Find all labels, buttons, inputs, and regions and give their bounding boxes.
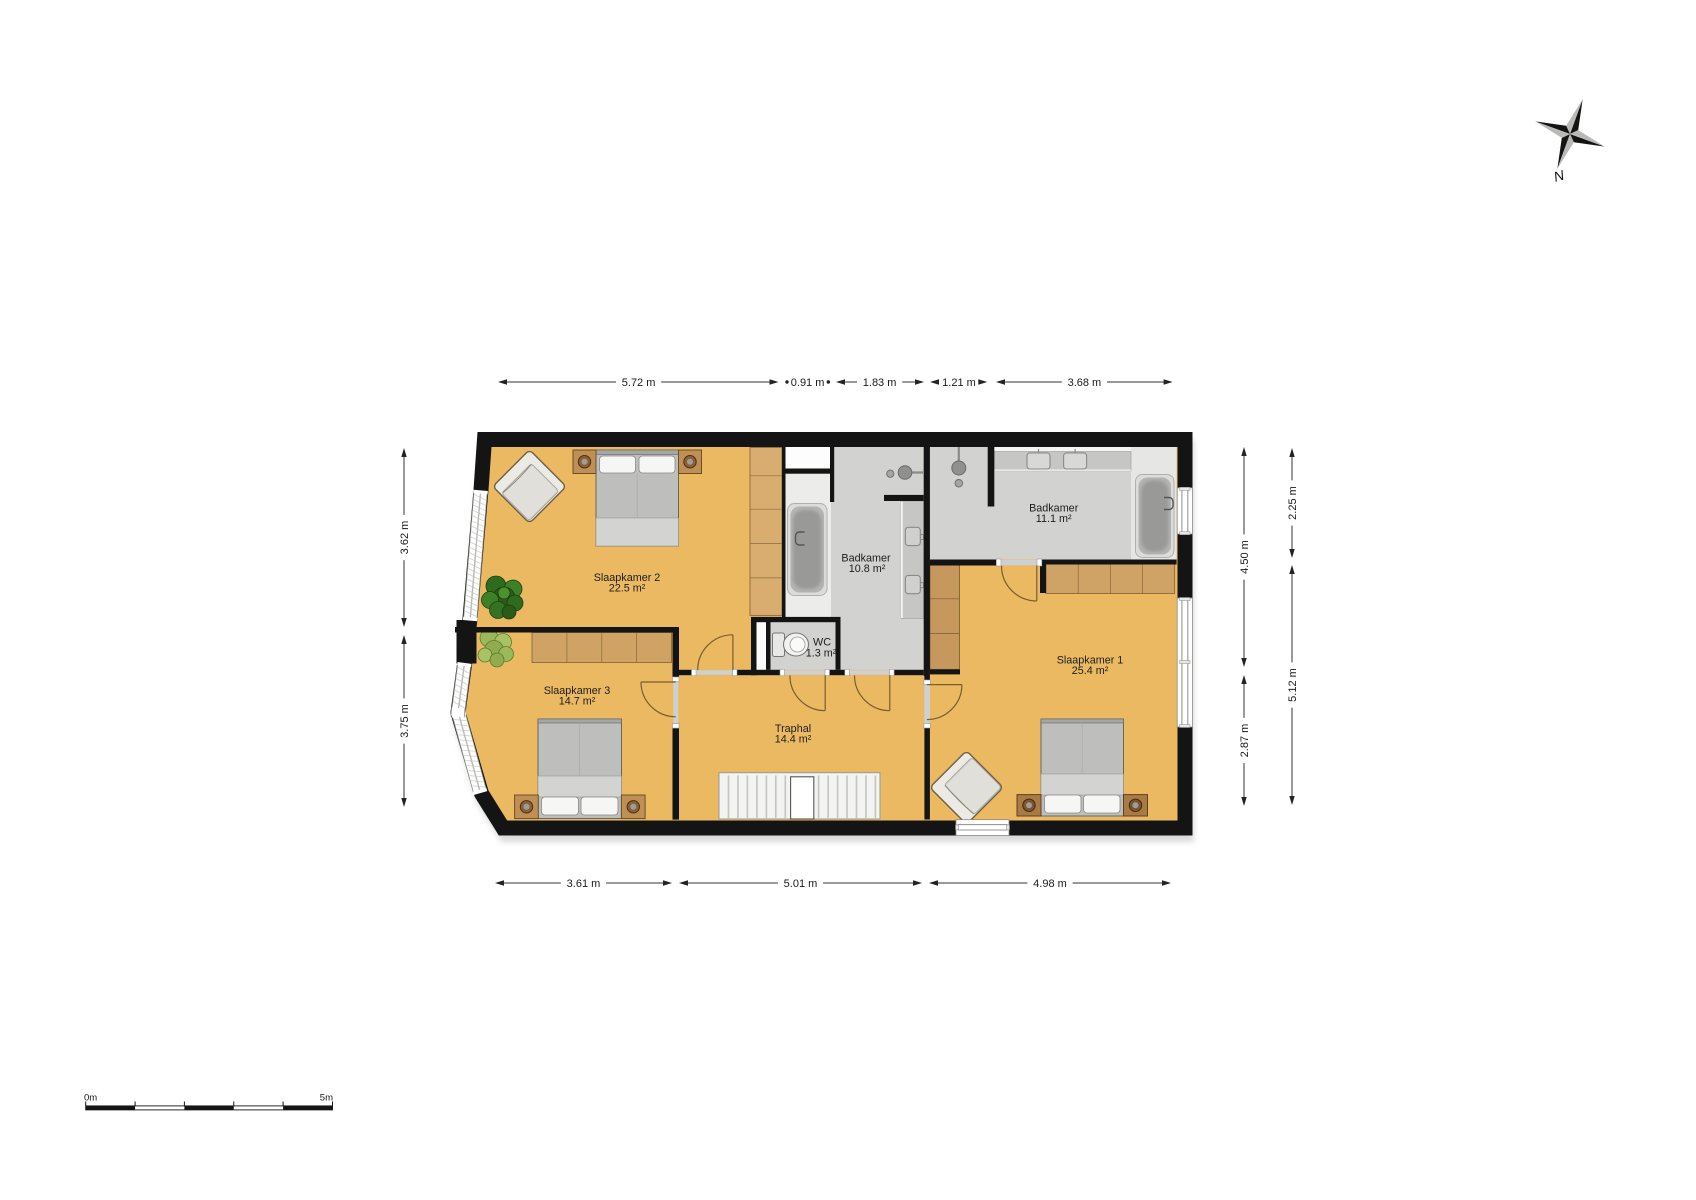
svg-text:1.83 m: 1.83 m <box>863 377 897 389</box>
svg-text:5.01 m: 5.01 m <box>784 878 818 890</box>
svg-text:14.7 m²: 14.7 m² <box>559 696 596 708</box>
svg-text:3.62 m: 3.62 m <box>399 521 411 555</box>
svg-text:5.12 m: 5.12 m <box>1287 668 1299 702</box>
svg-text:2.87 m: 2.87 m <box>1239 724 1251 758</box>
svg-text:1.21 m: 1.21 m <box>942 377 976 389</box>
svg-text:0m: 0m <box>84 1093 97 1104</box>
svg-text:3.61 m: 3.61 m <box>567 878 601 890</box>
svg-text:22.5 m²: 22.5 m² <box>609 583 646 595</box>
svg-text:4.50 m: 4.50 m <box>1239 540 1251 574</box>
svg-text:4.98 m: 4.98 m <box>1033 878 1067 890</box>
svg-text:1.3 m²: 1.3 m² <box>806 647 837 659</box>
svg-text:10.8 m²: 10.8 m² <box>849 563 886 575</box>
svg-text:5m: 5m <box>320 1093 333 1104</box>
svg-text:5.72 m: 5.72 m <box>622 377 656 389</box>
svg-text:14.4 m²: 14.4 m² <box>775 734 812 746</box>
svg-text:25.4 m²: 25.4 m² <box>1072 665 1109 677</box>
svg-text:3.68 m: 3.68 m <box>1068 377 1102 389</box>
svg-text:2.25 m: 2.25 m <box>1287 486 1299 520</box>
svg-text:11.1 m²: 11.1 m² <box>1036 513 1072 525</box>
svg-text:3.75 m: 3.75 m <box>399 704 411 738</box>
svg-text:0.91 m: 0.91 m <box>791 377 825 389</box>
